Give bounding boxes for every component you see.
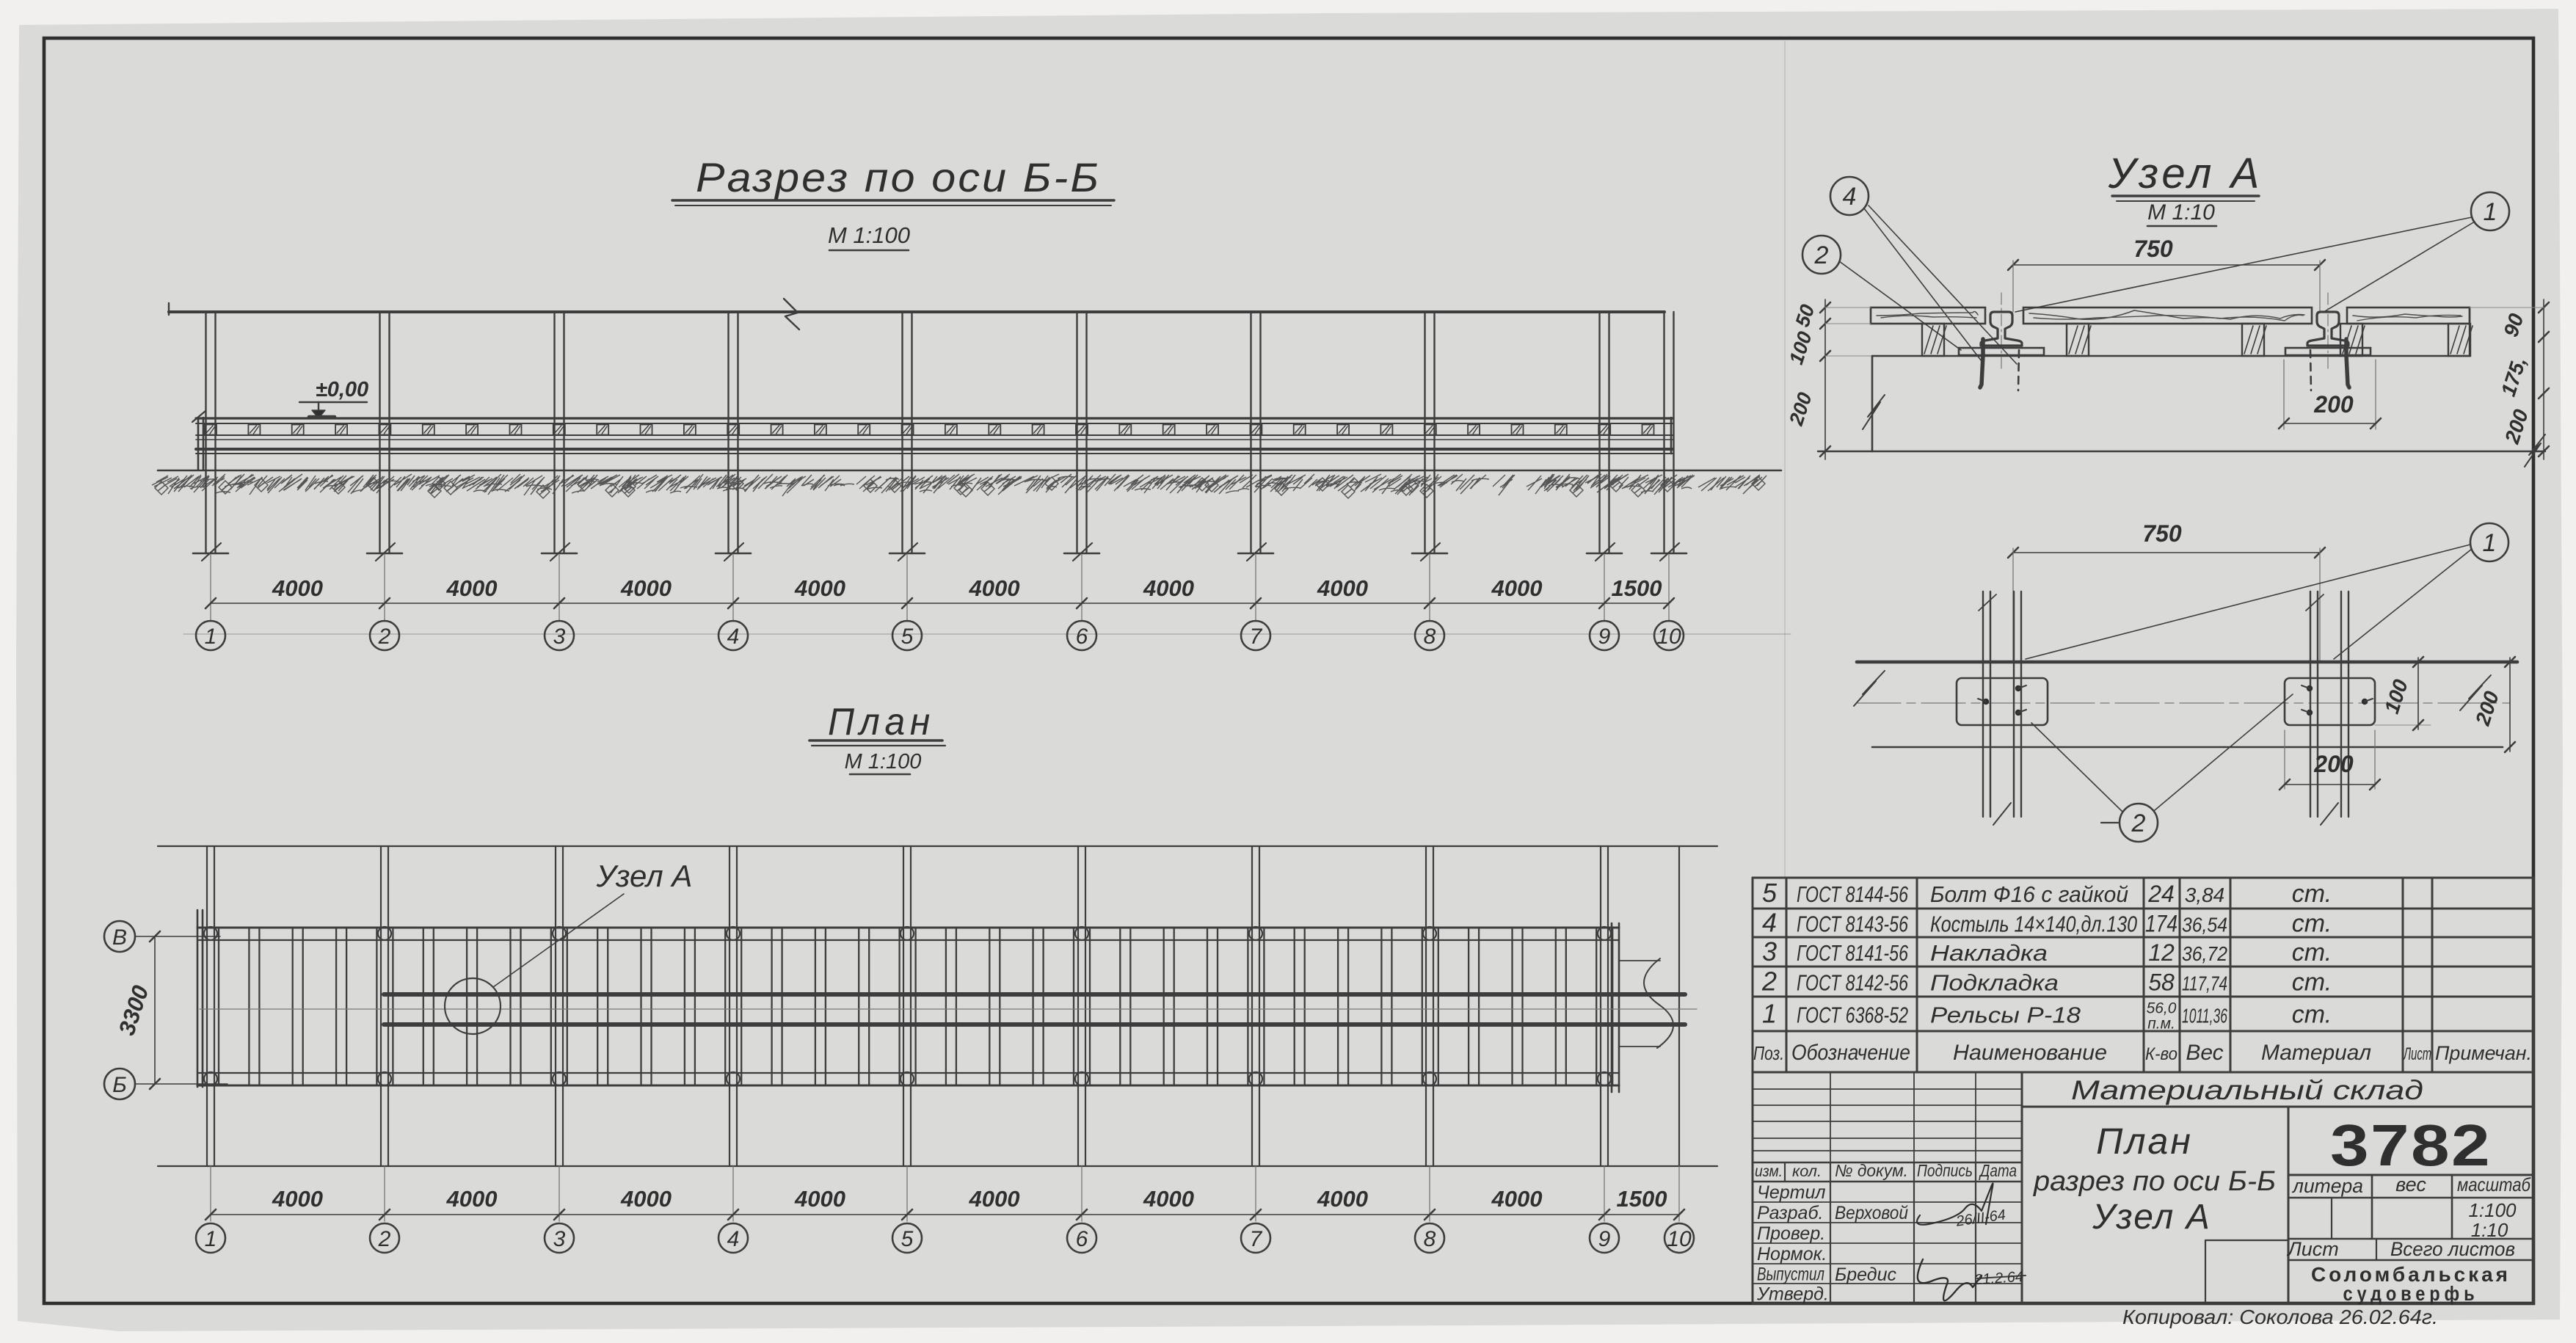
svg-text:ст.: ст. [2292, 880, 2332, 908]
svg-text:План: План [2096, 1121, 2193, 1162]
svg-text:2: 2 [2131, 809, 2146, 837]
svg-text:Утверд.: Утверд. [1756, 1284, 1829, 1305]
svg-text:4000: 4000 [620, 1186, 672, 1212]
svg-text:4000: 4000 [969, 1186, 1020, 1212]
svg-text:Узел А: Узел А [2092, 1198, 2211, 1237]
svg-text:7: 7 [1250, 625, 1263, 649]
svg-text:1: 1 [1762, 999, 1777, 1029]
svg-text:1011,36: 1011,36 [2182, 1005, 2227, 1027]
svg-text:2: 2 [1814, 241, 1829, 269]
svg-text:Б: Б [112, 1073, 127, 1097]
svg-text:4000: 4000 [794, 575, 845, 601]
svg-text:ст.: ст. [2292, 1001, 2332, 1029]
svg-text:Разрез по оси Б-Б: Разрез по оси Б-Б [696, 154, 1101, 200]
svg-text:1: 1 [2484, 198, 2497, 226]
svg-text:ГОСТ 8143-56: ГОСТ 8143-56 [1797, 911, 1909, 937]
svg-text:7: 7 [1250, 1227, 1263, 1251]
svg-text:судоверфь: судоверфь [2343, 1282, 2479, 1305]
svg-text:п.м.: п.м. [2147, 1016, 2175, 1033]
svg-text:200: 200 [2313, 391, 2354, 418]
svg-text:21.2.64: 21.2.64 [1973, 1269, 2024, 1289]
svg-text:Рельсы Р-18: Рельсы Р-18 [1930, 1002, 2081, 1028]
svg-text:3,84: 3,84 [2185, 884, 2225, 906]
svg-text:Бредис: Бредис [1835, 1264, 1897, 1285]
svg-text:Материальный склад: Материальный склад [2071, 1075, 2423, 1105]
svg-text:Копировал: Соколова 26.02.64г: Копировал: Соколова 26.02.64г. [2122, 1306, 2438, 1328]
svg-text:36,72: 36,72 [2182, 942, 2227, 965]
svg-text:М 1:100: М 1:100 [828, 222, 910, 248]
svg-text:9: 9 [1598, 1227, 1611, 1251]
svg-text:4: 4 [727, 1227, 740, 1251]
svg-text:4000: 4000 [1143, 1186, 1194, 1212]
svg-text:Подкладка: Подкладка [1930, 970, 2059, 996]
svg-text:6: 6 [1076, 625, 1088, 649]
svg-text:117,74: 117,74 [2182, 972, 2227, 995]
svg-text:8: 8 [1424, 1227, 1436, 1251]
svg-text:4000: 4000 [1317, 1186, 1368, 1212]
svg-text:ст.: ст. [2292, 969, 2332, 997]
svg-text:4: 4 [1762, 908, 1777, 938]
svg-text:24: 24 [2147, 881, 2175, 907]
svg-text:Узел А: Узел А [596, 859, 693, 893]
svg-text:12: 12 [2148, 939, 2175, 966]
svg-text:ГОСТ 8141-56: ГОСТ 8141-56 [1797, 940, 1909, 966]
svg-text:3: 3 [1762, 936, 1777, 967]
svg-text:750: 750 [2133, 236, 2173, 262]
svg-text:6: 6 [1076, 1227, 1088, 1251]
svg-text:4000: 4000 [1143, 575, 1194, 601]
svg-text:ГОСТ 8144-56: ГОСТ 8144-56 [1797, 881, 1909, 907]
svg-text:4000: 4000 [446, 1186, 498, 1212]
svg-text:Выпустил: Выпустил [1757, 1264, 1824, 1285]
svg-text:3: 3 [553, 625, 566, 649]
svg-text:Провер.: Провер. [1757, 1223, 1825, 1244]
svg-text:Лист: Лист [2286, 1238, 2339, 1260]
svg-text:Узел А: Узел А [2108, 150, 2263, 197]
svg-text:5: 5 [901, 1227, 914, 1251]
svg-text:2: 2 [378, 1227, 391, 1251]
svg-text:1: 1 [205, 1227, 217, 1251]
svg-text:4: 4 [727, 625, 740, 649]
svg-text:ГОСТ 8142-56: ГОСТ 8142-56 [1797, 970, 1909, 996]
svg-text:4000: 4000 [446, 575, 498, 601]
svg-text:174: 174 [2145, 911, 2177, 937]
svg-text:Обозначение: Обозначение [1791, 1041, 1910, 1065]
svg-text:1500: 1500 [1612, 575, 1662, 601]
svg-text:58: 58 [2148, 969, 2175, 996]
svg-text:Разраб.: Разраб. [1757, 1203, 1823, 1223]
svg-text:Лист: Лист [2403, 1044, 2431, 1064]
svg-text:разрез по оси Б-Б: разрез по оси Б-Б [2033, 1166, 2276, 1197]
svg-text:4000: 4000 [272, 1186, 323, 1212]
svg-text:Вес: Вес [2186, 1041, 2223, 1065]
svg-text:56,0: 56,0 [2147, 1000, 2177, 1017]
svg-text:4000: 4000 [1491, 1186, 1543, 1212]
svg-text:4000: 4000 [794, 1186, 845, 1212]
svg-text:ст.: ст. [2292, 939, 2332, 967]
svg-text:2: 2 [378, 625, 391, 649]
svg-text:750: 750 [2142, 520, 2182, 547]
svg-text:2: 2 [1761, 967, 1777, 997]
svg-text:4000: 4000 [272, 575, 323, 601]
svg-text:8: 8 [1424, 625, 1436, 649]
svg-text:изм.: изм. [1755, 1163, 1783, 1180]
svg-text:10: 10 [1667, 1227, 1692, 1251]
svg-text:9: 9 [1598, 625, 1611, 649]
svg-text:5: 5 [901, 625, 914, 649]
svg-text:4000: 4000 [1317, 575, 1368, 601]
svg-text:Примечан.: Примечан. [2435, 1042, 2532, 1064]
svg-text:План: План [828, 701, 935, 743]
svg-text:1:100: 1:100 [2468, 1199, 2517, 1221]
svg-text:Подпись: Подпись [1917, 1161, 1973, 1180]
svg-text:Поз.: Поз. [1753, 1042, 1784, 1064]
svg-text:±0,00: ±0,00 [316, 378, 368, 401]
svg-text:36,54: 36,54 [2182, 914, 2227, 936]
svg-text:В: В [112, 925, 127, 950]
svg-text:1: 1 [2483, 529, 2497, 557]
svg-text:Костыль 14×140,дл.130: Костыль 14×140,дл.130 [1930, 911, 2137, 937]
svg-text:ст.: ст. [2292, 910, 2332, 938]
svg-text:1500: 1500 [1617, 1186, 1667, 1212]
svg-text:М 1:100: М 1:100 [845, 750, 922, 774]
svg-text:4000: 4000 [969, 575, 1020, 601]
svg-text:№ докум.: № докум. [1835, 1161, 1908, 1180]
svg-text:Нормок.: Нормок. [1757, 1244, 1827, 1264]
svg-text:3782: 3782 [2330, 1113, 2492, 1178]
svg-text:масштаб: масштаб [2457, 1173, 2531, 1195]
svg-text:Чертил: Чертил [1757, 1182, 1825, 1203]
svg-text:4000: 4000 [620, 575, 672, 601]
svg-text:Материал: Материал [2261, 1041, 2371, 1065]
svg-text:ГОСТ 6368-52: ГОСТ 6368-52 [1797, 1002, 1908, 1028]
svg-text:4: 4 [1843, 183, 1857, 211]
svg-text:Наименование: Наименование [1953, 1041, 2107, 1065]
svg-text:К-во: К-во [2145, 1044, 2177, 1064]
svg-text:вес: вес [2395, 1173, 2426, 1195]
svg-text:1: 1 [205, 625, 217, 649]
svg-text:3: 3 [553, 1227, 566, 1251]
svg-text:Верховой: Верховой [1835, 1203, 1908, 1223]
svg-text:5: 5 [1762, 878, 1778, 908]
svg-text:Болт Ф16 с гайкой: Болт Ф16 с гайкой [1930, 881, 2128, 907]
svg-text:10: 10 [1656, 625, 1681, 649]
svg-text:М 1:10: М 1:10 [2147, 200, 2215, 225]
svg-text:Всего листов: Всего листов [2390, 1238, 2515, 1260]
svg-text:Накладка: Накладка [1930, 940, 2048, 966]
svg-text:200: 200 [2313, 751, 2354, 777]
svg-text:литера: литера [2291, 1175, 2363, 1197]
svg-text:Дата: Дата [1979, 1161, 2017, 1180]
svg-text:кол.: кол. [1792, 1163, 1822, 1180]
svg-text:4000: 4000 [1491, 575, 1543, 601]
